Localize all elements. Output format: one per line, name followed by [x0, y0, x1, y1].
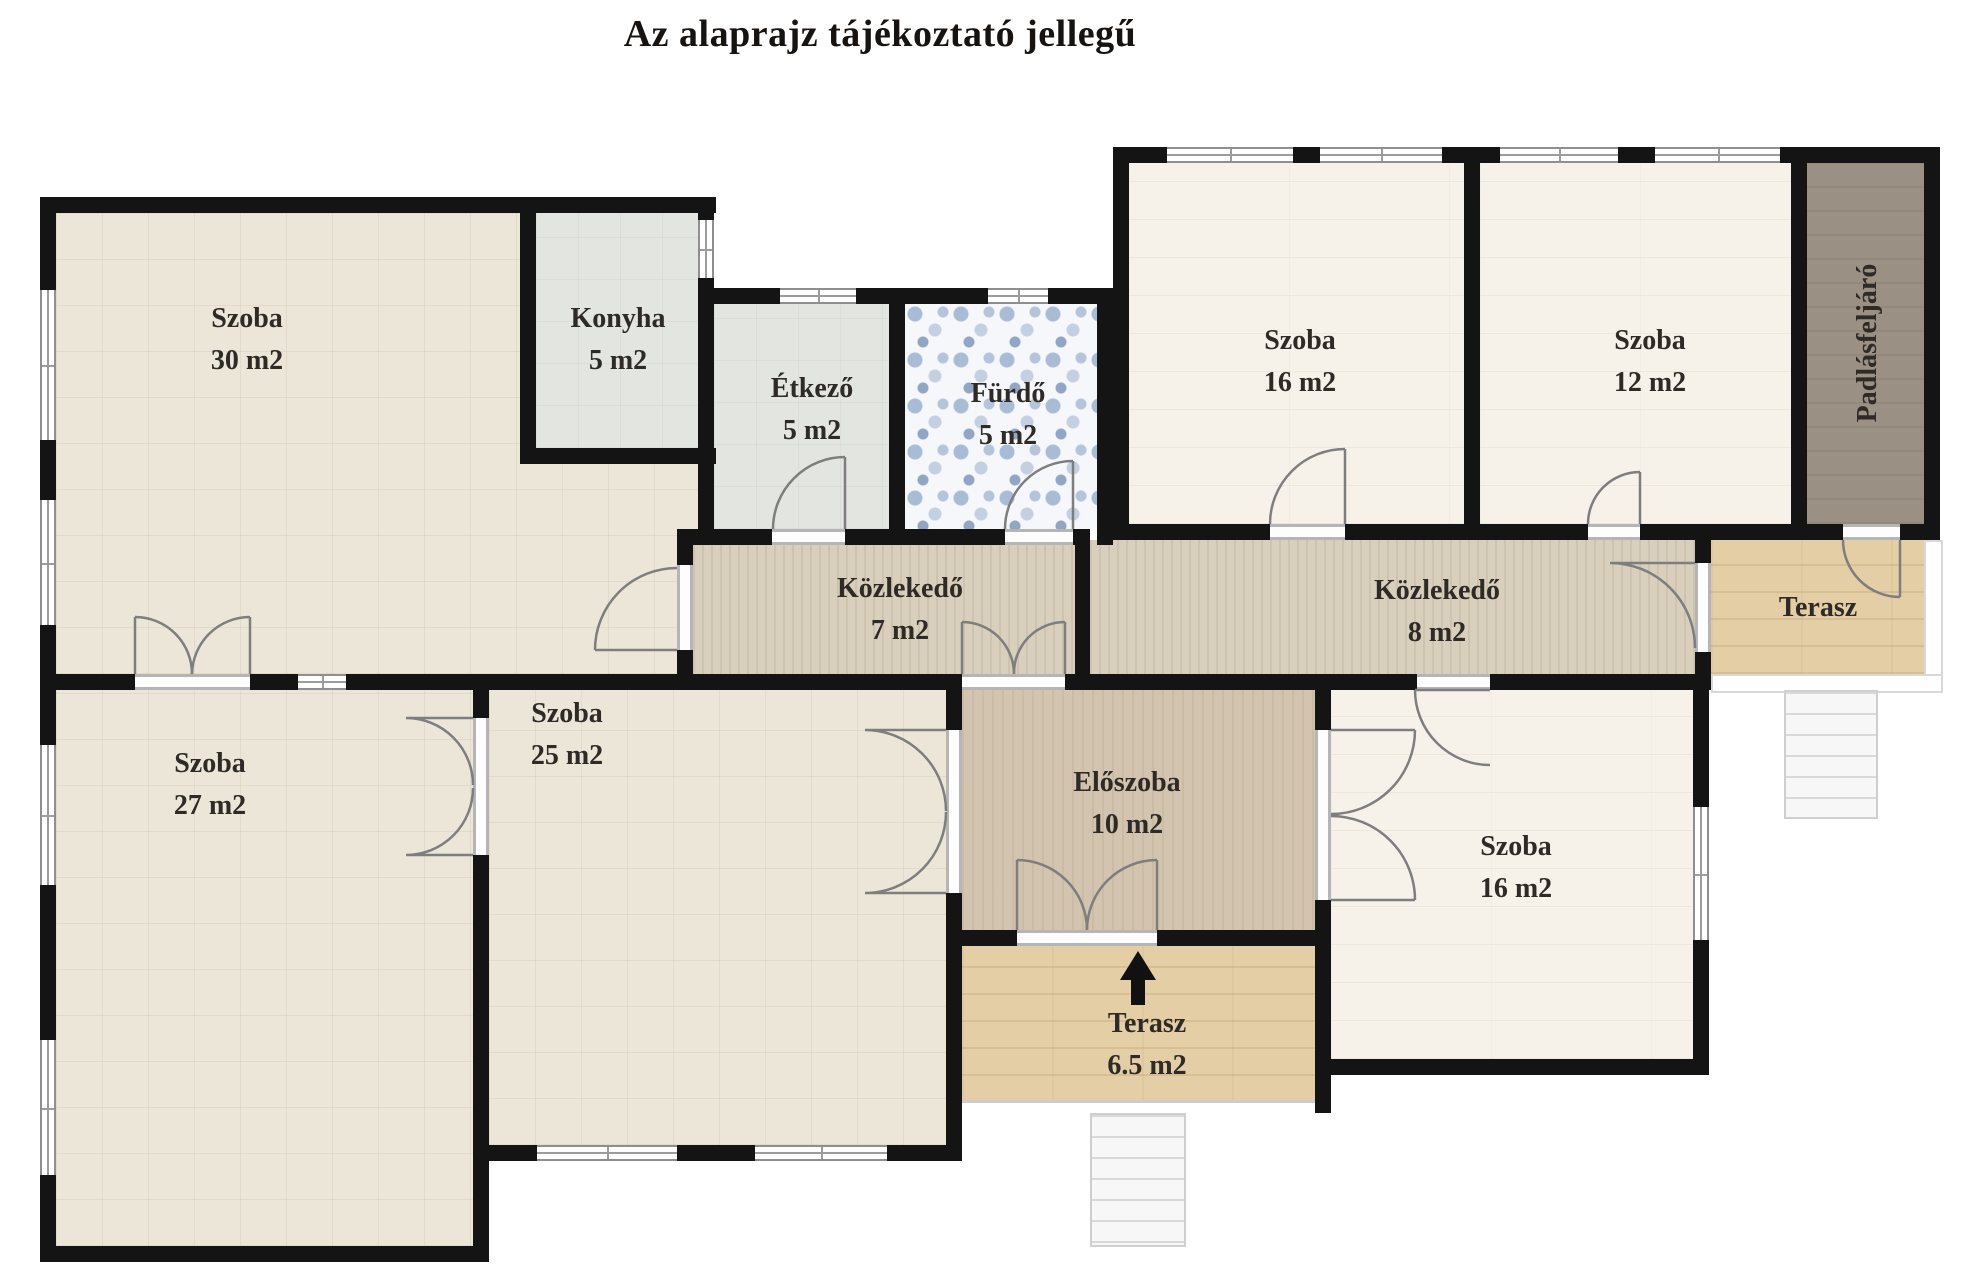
door-arc — [1331, 730, 1415, 814]
room-name: Padlásfeljáró — [1847, 264, 1889, 423]
room-label-padlasfeljaro: Padlásfeljáró — [1847, 264, 1889, 423]
room-name: Szoba — [1480, 826, 1552, 868]
door-swings — [135, 449, 1900, 930]
room-label-kozlekedo-8: Közlekedő 8 m2 — [1374, 570, 1500, 654]
door-arc — [595, 568, 677, 650]
room-name: Előszoba — [1073, 762, 1180, 804]
room-name: Szoba — [1614, 320, 1686, 362]
room-name: Közlekedő — [1374, 570, 1500, 612]
room-name: Terasz — [1779, 587, 1857, 629]
room-label-szoba-30: Szoba 30 m2 — [211, 298, 283, 382]
floor-plan: Az alaprajz tájékoztató jellegű — [0, 0, 1988, 1280]
room-name: Szoba — [531, 693, 603, 735]
door-arc — [1415, 690, 1490, 765]
room-name: Fürdő — [971, 373, 1046, 415]
room-area: 27 m2 — [174, 785, 246, 827]
room-label-szoba-25: Szoba 25 m2 — [531, 693, 603, 777]
door-arc — [865, 730, 946, 811]
room-area: 30 m2 — [211, 340, 283, 382]
door-arc — [773, 457, 845, 529]
room-label-kozlekedo-7: Közlekedő 7 m2 — [837, 568, 963, 652]
door-arc — [1005, 461, 1073, 529]
door-arc — [865, 812, 946, 893]
room-area: 5 m2 — [771, 410, 853, 452]
door-arcs-layer — [0, 0, 1988, 1280]
room-area: 10 m2 — [1073, 804, 1180, 846]
room-area: 16 m2 — [1480, 868, 1552, 910]
room-name: Közlekedő — [837, 568, 963, 610]
room-area: 5 m2 — [571, 340, 666, 382]
door-arc — [406, 718, 473, 785]
room-area: 5 m2 — [971, 415, 1046, 457]
door-arc — [1270, 449, 1345, 524]
entrance-arrow-icon — [1120, 951, 1156, 1005]
door-arc — [1017, 860, 1087, 930]
room-label-terasz-also: Terasz 6.5 m2 — [1107, 1003, 1186, 1087]
room-label-etkezo: Étkező 5 m2 — [771, 368, 853, 452]
door-arc — [962, 622, 1014, 674]
door-arc — [1014, 622, 1065, 674]
room-label-terasz-felso: Terasz — [1779, 587, 1857, 629]
room-area: 8 m2 — [1374, 612, 1500, 654]
room-name: Konyha — [571, 298, 666, 340]
room-label-konyha: Konyha 5 m2 — [571, 298, 666, 382]
room-label-szoba-16-also: Szoba 16 m2 — [1480, 826, 1552, 910]
door-arc — [406, 788, 473, 855]
room-label-eloszoba: Előszoba 10 m2 — [1073, 762, 1180, 846]
room-area: 25 m2 — [531, 735, 603, 777]
door-arc — [135, 617, 192, 674]
door-arc — [1087, 860, 1157, 930]
room-area: 7 m2 — [837, 610, 963, 652]
door-arc — [1588, 472, 1640, 524]
room-name: Szoba — [1264, 320, 1336, 362]
room-name: Étkező — [771, 368, 853, 410]
room-label-szoba-16-felso: Szoba 16 m2 — [1264, 320, 1336, 404]
room-name: Terasz — [1107, 1003, 1186, 1045]
door-arc — [192, 617, 250, 674]
room-name: Szoba — [174, 743, 246, 785]
room-label-furdo: Fürdő 5 m2 — [971, 373, 1046, 457]
room-label-szoba-12: Szoba 12 m2 — [1614, 320, 1686, 404]
door-arc — [1331, 816, 1415, 900]
room-label-szoba-27: Szoba 27 m2 — [174, 743, 246, 827]
room-area: 6.5 m2 — [1107, 1045, 1186, 1087]
room-area: 16 m2 — [1264, 362, 1336, 404]
page-title: Az alaprajz tájékoztató jellegű — [624, 12, 1137, 56]
door-arc — [1610, 563, 1695, 648]
room-area: 12 m2 — [1614, 362, 1686, 404]
room-name: Szoba — [211, 298, 283, 340]
